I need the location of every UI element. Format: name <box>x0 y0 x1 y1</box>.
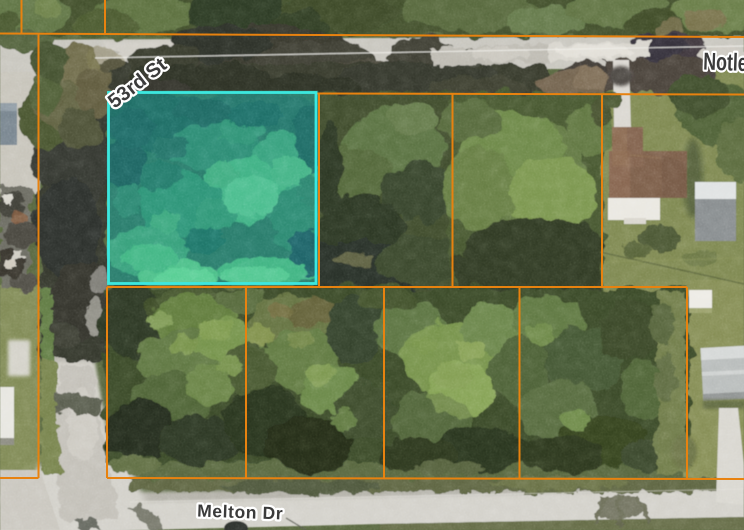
svg-text:Notlem St: Notlem St <box>703 49 744 79</box>
svg-text:Melton Dr: Melton Dr <box>197 501 284 524</box>
